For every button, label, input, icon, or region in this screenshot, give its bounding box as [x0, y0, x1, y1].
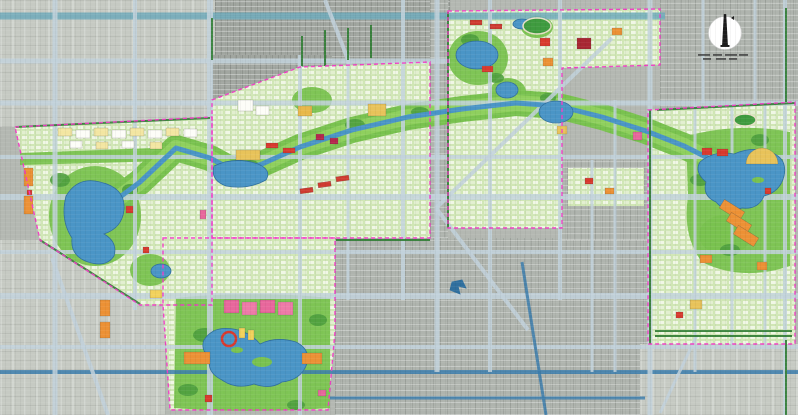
lake	[213, 160, 268, 187]
lake	[539, 101, 573, 123]
building	[676, 312, 683, 318]
sports-field	[523, 18, 551, 34]
building	[318, 390, 326, 396]
building	[633, 132, 642, 140]
lake-island	[252, 357, 272, 367]
building	[200, 210, 206, 219]
lake	[456, 41, 498, 69]
road-diagonal	[522, 262, 546, 415]
building	[298, 106, 312, 116]
road	[0, 155, 798, 159]
building	[283, 148, 295, 153]
building	[260, 300, 275, 313]
building	[700, 255, 712, 263]
road	[764, 103, 767, 345]
building	[150, 290, 162, 298]
lake-island	[231, 347, 243, 353]
road	[0, 293, 798, 299]
master-plan-map	[0, 0, 798, 415]
building	[239, 328, 245, 338]
building	[330, 138, 338, 144]
building	[256, 106, 269, 115]
tower-logo-icon	[698, 14, 748, 60]
building	[143, 247, 149, 253]
logo-caption-mark	[713, 54, 722, 56]
road-diagonal	[325, 0, 350, 65]
building	[316, 134, 324, 140]
logo-caption-mark	[739, 54, 748, 56]
building	[205, 395, 212, 402]
building	[543, 58, 553, 66]
sports-field	[734, 114, 756, 126]
building	[612, 28, 622, 35]
building	[166, 128, 179, 136]
road	[702, 0, 705, 103]
road	[614, 100, 617, 372]
building	[96, 142, 108, 149]
building	[605, 188, 614, 194]
building	[148, 130, 162, 138]
logo-caption-mark	[716, 58, 726, 60]
building	[702, 148, 712, 155]
plan-overlay	[0, 0, 798, 415]
building	[490, 24, 502, 29]
mid-pocket-texture	[568, 168, 644, 206]
road	[591, 160, 594, 372]
building	[765, 188, 771, 194]
building	[577, 38, 591, 49]
building	[757, 262, 767, 270]
building	[100, 300, 110, 316]
road-diagonal	[52, 258, 108, 415]
building	[248, 330, 254, 340]
building	[482, 66, 493, 72]
building	[238, 100, 253, 111]
grove	[178, 384, 198, 396]
building	[94, 128, 108, 136]
building	[112, 130, 126, 138]
logo-caption-mark	[729, 58, 737, 60]
lake	[496, 82, 518, 98]
building	[236, 150, 260, 160]
lake-island	[752, 177, 764, 183]
grove	[309, 314, 327, 326]
building	[122, 141, 134, 148]
road	[133, 0, 137, 310]
building	[76, 130, 90, 138]
logo-caption-mark	[703, 58, 711, 60]
road	[401, 0, 405, 300]
lake	[450, 280, 466, 294]
building	[184, 352, 210, 364]
road	[0, 101, 798, 106]
building	[540, 38, 550, 46]
building	[130, 128, 144, 136]
building	[150, 142, 162, 149]
building	[266, 143, 278, 148]
building	[470, 20, 482, 25]
building	[126, 206, 133, 213]
building	[368, 104, 386, 116]
lake	[151, 264, 171, 278]
road	[53, 0, 58, 415]
logo-caption-mark	[698, 54, 710, 56]
building	[242, 302, 257, 315]
building	[58, 128, 72, 136]
building	[278, 302, 293, 315]
building	[184, 129, 197, 137]
building	[302, 353, 322, 364]
road	[330, 397, 645, 400]
tower-base	[721, 45, 730, 47]
building	[717, 149, 728, 156]
building	[100, 322, 110, 338]
road	[435, 0, 440, 372]
logo-caption-mark	[725, 54, 737, 56]
grove	[287, 400, 305, 410]
building	[224, 300, 239, 313]
road	[754, 0, 757, 103]
building	[690, 300, 702, 309]
road	[0, 59, 450, 64]
road	[0, 250, 798, 254]
road	[0, 345, 798, 349]
building	[70, 141, 82, 148]
building	[585, 178, 593, 184]
